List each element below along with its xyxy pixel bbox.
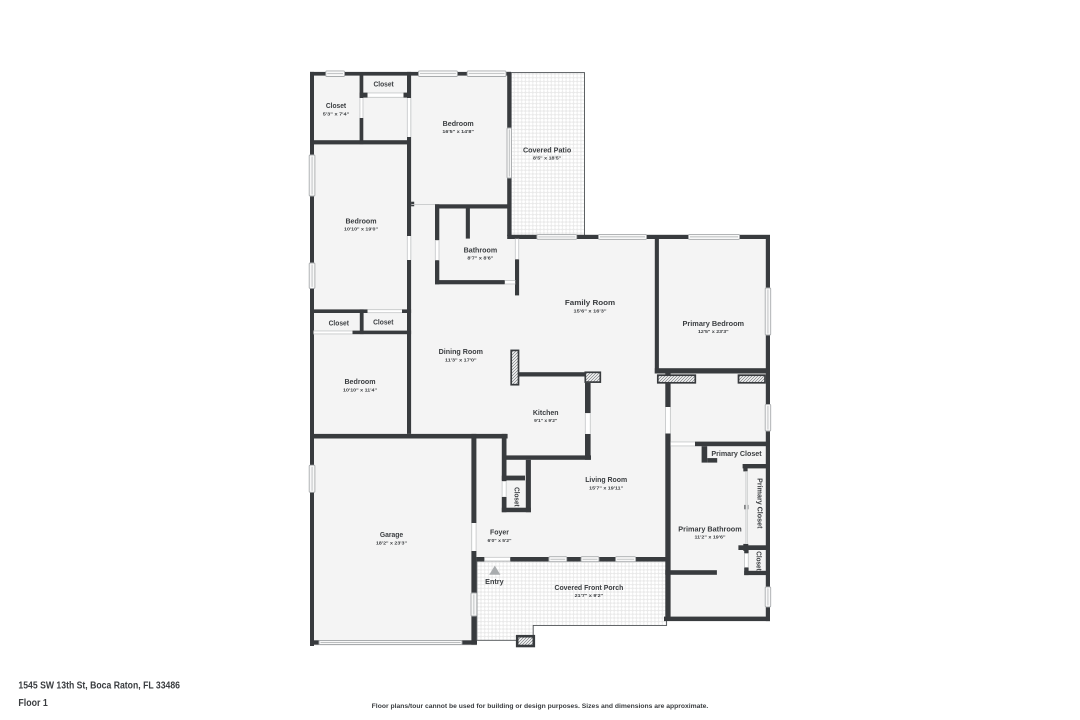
svg-text:Primary Closet: Primary Closet bbox=[756, 478, 765, 529]
svg-text:Foyer: Foyer bbox=[490, 528, 509, 537]
svg-text:Primary Bathroom: Primary Bathroom bbox=[678, 524, 742, 533]
svg-text:Closet: Closet bbox=[326, 101, 347, 110]
svg-text:18'2" x 23'3": 18'2" x 23'3" bbox=[376, 540, 407, 546]
svg-text:12'5" x 23'3": 12'5" x 23'3" bbox=[698, 329, 729, 335]
svg-text:Garage: Garage bbox=[380, 530, 403, 539]
svg-text:21'7" x 9'2": 21'7" x 9'2" bbox=[575, 593, 603, 599]
svg-text:11'3" x 17'0": 11'3" x 17'0" bbox=[445, 358, 477, 364]
svg-text:Covered Patio: Covered Patio bbox=[523, 146, 572, 155]
svg-text:Closet: Closet bbox=[513, 487, 522, 507]
svg-text:Living Room: Living Room bbox=[585, 475, 627, 484]
svg-text:1545 SW 13th St, Boca Raton, F: 1545 SW 13th St, Boca Raton, FL 33486 bbox=[18, 681, 180, 692]
svg-text:Closet: Closet bbox=[755, 551, 764, 571]
svg-text:Family Room: Family Room bbox=[565, 298, 616, 307]
svg-text:Bathroom: Bathroom bbox=[464, 245, 498, 254]
svg-text:10'10" x 11'4": 10'10" x 11'4" bbox=[343, 388, 377, 394]
svg-text:11'2" x 19'6": 11'2" x 19'6" bbox=[695, 535, 726, 541]
svg-text:Primary Closet: Primary Closet bbox=[711, 449, 762, 458]
svg-text:8'7" x 8'6": 8'7" x 8'6" bbox=[467, 255, 493, 261]
svg-text:Dining Room: Dining Room bbox=[439, 347, 484, 356]
svg-text:8'5" x 18'5": 8'5" x 18'5" bbox=[533, 155, 561, 161]
svg-text:Kitchen: Kitchen bbox=[533, 408, 559, 417]
svg-text:Bedroom: Bedroom bbox=[345, 216, 376, 225]
svg-text:16'5" x 14'8": 16'5" x 14'8" bbox=[442, 129, 474, 135]
svg-text:15'6" x 16'3": 15'6" x 16'3" bbox=[574, 309, 607, 315]
svg-text:Closet: Closet bbox=[329, 318, 350, 327]
svg-text:Covered Front Porch: Covered Front Porch bbox=[554, 583, 623, 592]
svg-text:9'1" x 9'2": 9'1" x 9'2" bbox=[534, 418, 557, 424]
svg-text:Floor plans/tour cannot be use: Floor plans/tour cannot be used for buil… bbox=[372, 703, 709, 710]
svg-text:Bedroom: Bedroom bbox=[344, 377, 375, 386]
svg-text:Closet: Closet bbox=[373, 318, 394, 327]
svg-text:15'7" x 19'11": 15'7" x 19'11" bbox=[589, 486, 623, 492]
svg-text:10'10" x 19'0": 10'10" x 19'0" bbox=[344, 226, 378, 232]
svg-text:Floor 1: Floor 1 bbox=[18, 698, 48, 709]
svg-text:Entry: Entry bbox=[485, 577, 504, 586]
svg-text:5'3" x 7'4": 5'3" x 7'4" bbox=[323, 112, 350, 118]
svg-text:Primary Bedroom: Primary Bedroom bbox=[683, 319, 745, 328]
svg-text:Closet: Closet bbox=[373, 80, 394, 89]
svg-text:6'0" x 5'2": 6'0" x 5'2" bbox=[488, 538, 512, 544]
svg-text:Bedroom: Bedroom bbox=[443, 119, 474, 128]
